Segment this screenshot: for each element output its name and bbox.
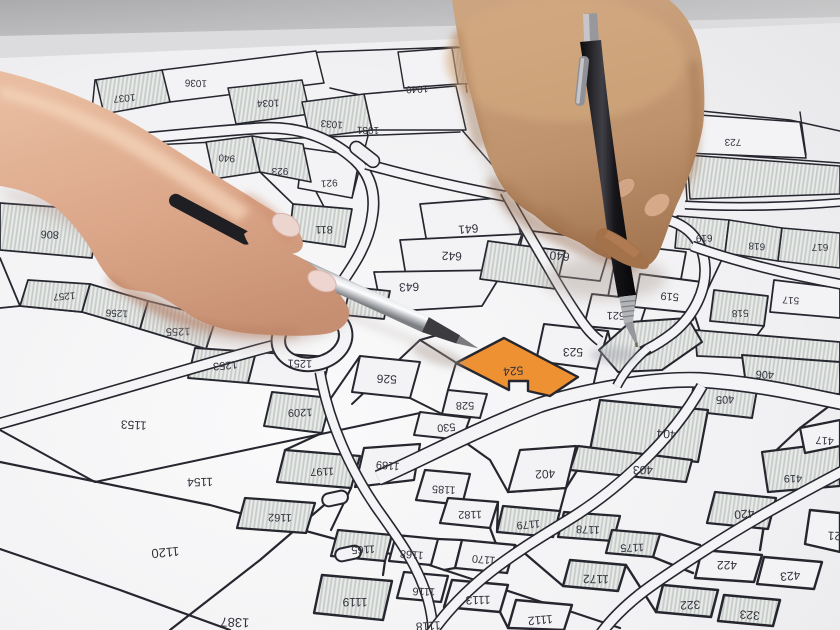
svg-text:1031: 1031 [356,124,379,135]
svg-text:1182: 1182 [458,508,482,520]
svg-text:524: 524 [502,363,523,378]
svg-text:419: 419 [784,472,802,484]
svg-text:642: 642 [441,249,462,264]
svg-text:405: 405 [716,393,735,406]
svg-text:530: 530 [437,420,456,434]
svg-text:1120: 1120 [151,544,180,561]
svg-text:1175: 1175 [620,541,644,554]
svg-text:1116: 1116 [412,585,435,598]
svg-text:517: 517 [782,293,800,305]
svg-text:1209: 1209 [288,406,313,419]
svg-text:523: 523 [563,345,583,359]
svg-text:417: 417 [815,433,834,446]
svg-text:519: 519 [660,289,679,303]
svg-text:526: 526 [376,371,397,386]
svg-text:940: 940 [218,151,236,163]
svg-text:806: 806 [40,228,59,241]
svg-text:811: 811 [315,223,333,235]
svg-text:921: 921 [320,176,338,188]
svg-text:618: 618 [748,239,766,251]
svg-text:1153: 1153 [120,417,147,432]
svg-text:1197: 1197 [310,465,334,478]
svg-text:1178: 1178 [576,523,600,536]
svg-text:322: 322 [680,597,701,612]
svg-text:1179: 1179 [516,517,541,531]
svg-text:923: 923 [271,165,288,176]
svg-text:404: 404 [656,426,677,442]
svg-text:518: 518 [731,307,749,319]
svg-text:420: 420 [733,506,754,521]
svg-text:1185: 1185 [432,482,456,495]
svg-text:323: 323 [739,607,760,622]
svg-text:1118: 1118 [415,618,441,630]
svg-text:1154: 1154 [187,475,213,489]
svg-text:1387: 1387 [220,614,249,630]
svg-text:1119: 1119 [342,595,367,609]
svg-text:422: 422 [717,558,737,572]
svg-text:421: 421 [827,528,840,543]
svg-text:1036: 1036 [184,77,207,89]
svg-text:1034: 1034 [256,97,279,109]
svg-text:641: 641 [457,221,478,237]
svg-text:1170: 1170 [471,552,496,566]
svg-text:1189: 1189 [375,458,400,472]
svg-text:402: 402 [535,466,556,481]
svg-text:1168: 1168 [400,547,424,561]
svg-text:1040: 1040 [405,82,428,94]
svg-text:1253: 1253 [213,358,238,372]
svg-text:1162: 1162 [268,511,292,523]
svg-text:1257: 1257 [52,289,75,302]
svg-text:1165: 1165 [351,542,375,555]
svg-text:406: 406 [756,368,775,381]
svg-text:1113: 1113 [465,593,490,607]
svg-text:1251: 1251 [287,357,312,370]
svg-text:403: 403 [632,463,653,477]
svg-text:423: 423 [779,568,800,583]
svg-text:1033: 1033 [320,117,344,130]
svg-text:1112: 1112 [527,612,553,628]
svg-text:1256: 1256 [105,306,128,318]
svg-text:643: 643 [399,280,420,295]
svg-text:617: 617 [811,241,828,252]
svg-text:528: 528 [456,399,475,411]
svg-text:1172: 1172 [583,572,609,586]
svg-text:619: 619 [695,232,713,244]
svg-text:1037: 1037 [112,91,136,104]
svg-text:723: 723 [724,136,741,147]
